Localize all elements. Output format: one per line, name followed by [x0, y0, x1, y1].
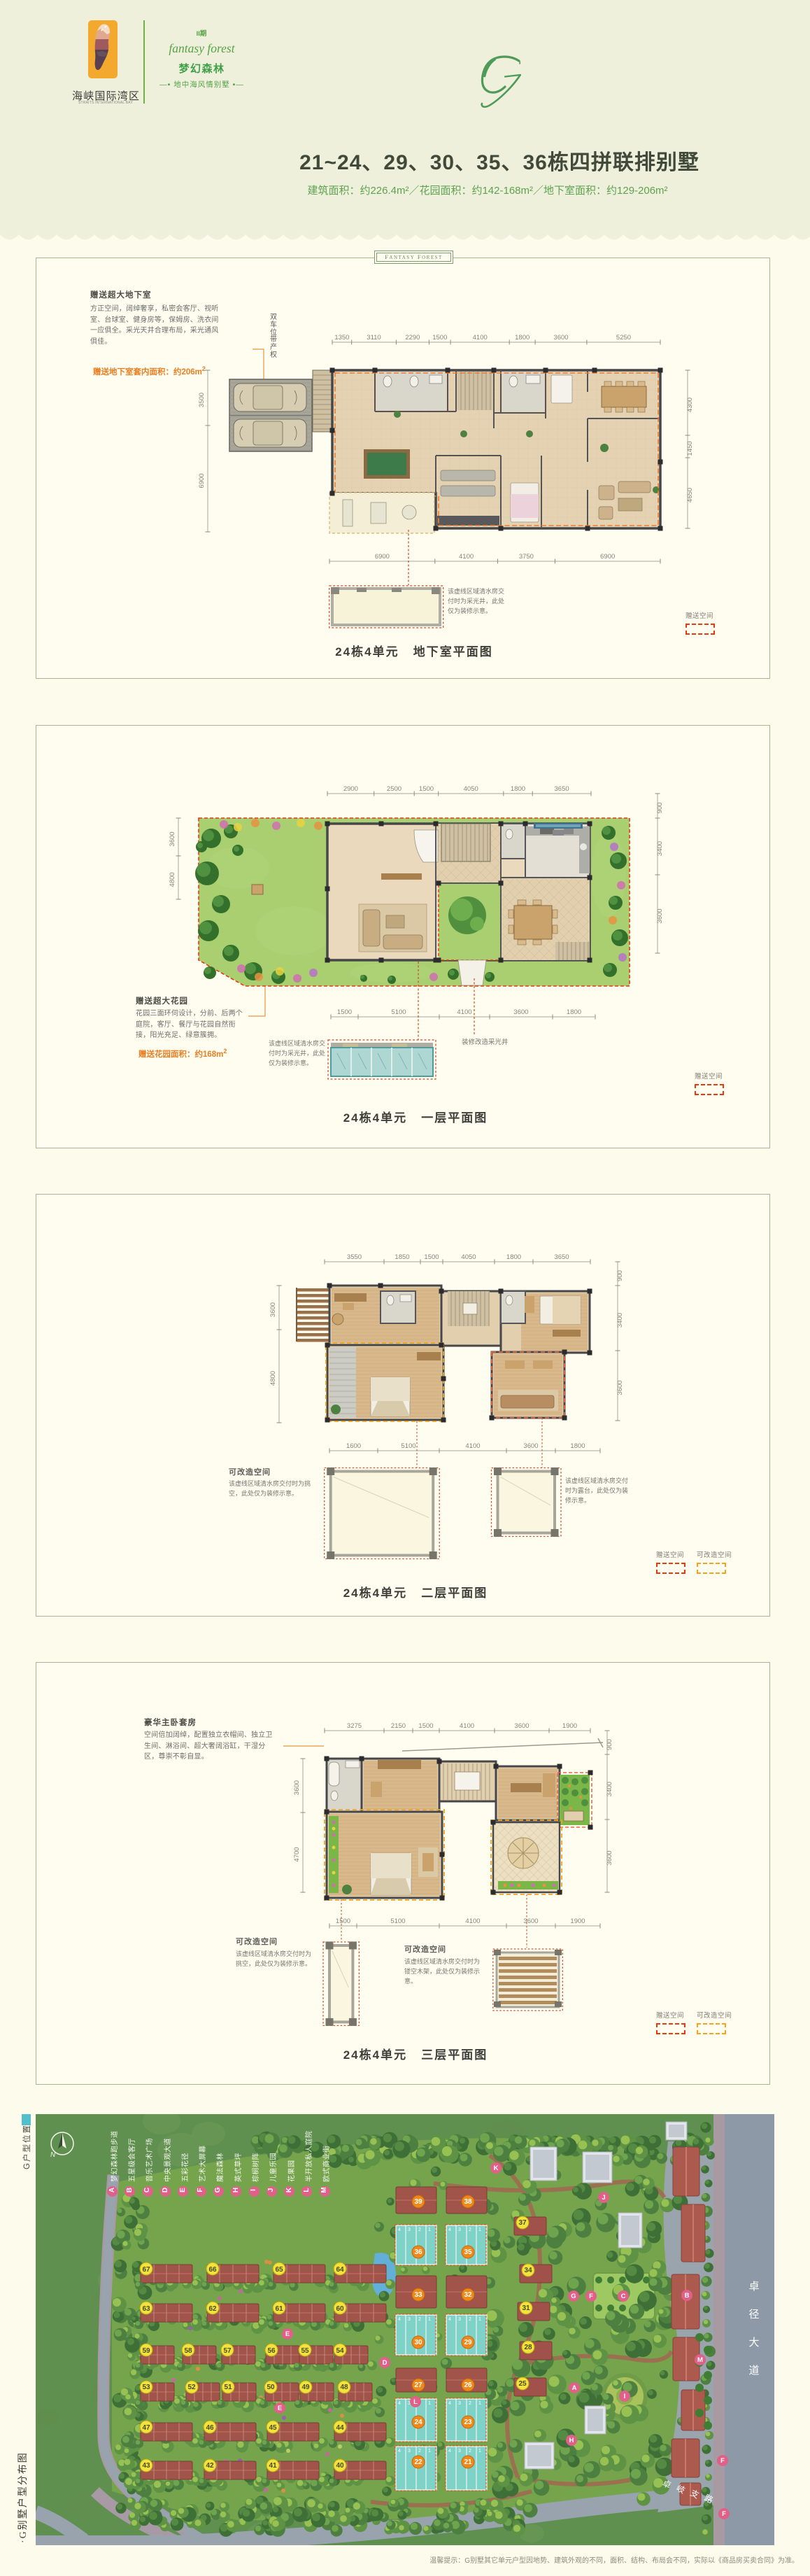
svg-text:3600: 3600: [523, 1917, 538, 1925]
svg-text:25: 25: [518, 2380, 527, 2388]
svg-text:2290: 2290: [405, 334, 420, 342]
svg-text:2: 2: [469, 2317, 471, 2322]
svg-text:1850: 1850: [395, 1253, 409, 1261]
svg-text:47: 47: [142, 2424, 150, 2432]
svg-text:4: 4: [448, 2227, 451, 2232]
svg-text:4100: 4100: [465, 1917, 480, 1925]
svg-text:3650: 3650: [554, 1253, 569, 1261]
svg-text:E: E: [285, 2330, 290, 2338]
svg-text:2500: 2500: [387, 785, 402, 793]
svg-text:3: 3: [458, 2449, 461, 2454]
svg-text:1500: 1500: [418, 1722, 433, 1730]
svg-text:3750: 3750: [519, 553, 534, 561]
svg-text:1800: 1800: [511, 785, 525, 793]
svg-text:51: 51: [224, 2384, 232, 2391]
svg-text:4050: 4050: [461, 1253, 476, 1261]
svg-text:M: M: [697, 2356, 703, 2364]
svg-text:4100: 4100: [457, 1008, 471, 1016]
svg-text:43: 43: [142, 2462, 150, 2470]
svg-text:1: 1: [428, 2317, 431, 2322]
svg-text:4650: 4650: [686, 488, 694, 502]
svg-text:3600: 3600: [293, 1780, 301, 1795]
svg-text:3500: 3500: [198, 393, 206, 407]
svg-text:27: 27: [414, 2381, 422, 2389]
svg-text:3600: 3600: [523, 1442, 538, 1450]
svg-text:900: 900: [616, 1270, 624, 1281]
svg-text:1500: 1500: [432, 334, 447, 342]
svg-text:F: F: [720, 2457, 725, 2465]
svg-text:4050: 4050: [464, 785, 478, 793]
svg-text:2: 2: [418, 2449, 421, 2454]
svg-text:42: 42: [206, 2462, 214, 2470]
svg-text:900: 900: [606, 1739, 613, 1750]
svg-text:2: 2: [418, 2317, 421, 2322]
svg-text:4100: 4100: [465, 1442, 480, 1450]
svg-text:F: F: [589, 2293, 593, 2300]
svg-text:H: H: [569, 2437, 574, 2444]
svg-text:1: 1: [428, 2227, 431, 2232]
svg-text:35: 35: [464, 2248, 472, 2256]
svg-text:B: B: [685, 2292, 690, 2300]
svg-text:1600: 1600: [346, 1442, 361, 1450]
svg-text:3600: 3600: [513, 1008, 528, 1016]
svg-text:1: 1: [428, 2449, 431, 2454]
svg-text:54: 54: [336, 2347, 344, 2355]
svg-text:23: 23: [464, 2419, 472, 2426]
svg-text:1: 1: [428, 2401, 431, 2406]
svg-text:52: 52: [187, 2384, 196, 2391]
svg-text:1500: 1500: [424, 1253, 439, 1261]
svg-text:2: 2: [469, 2449, 471, 2454]
svg-text:2900: 2900: [343, 785, 358, 793]
svg-text:3650: 3650: [555, 785, 569, 793]
svg-text:A: A: [572, 2384, 577, 2392]
svg-text:1: 1: [478, 2449, 481, 2454]
svg-text:3600: 3600: [269, 1302, 277, 1317]
svg-text:66: 66: [208, 2266, 217, 2274]
svg-text:1800: 1800: [506, 1253, 521, 1261]
svg-text:5100: 5100: [390, 1917, 405, 1925]
svg-text:3: 3: [408, 2449, 411, 2454]
svg-text:28: 28: [524, 2344, 532, 2351]
svg-text:G: G: [571, 2293, 576, 2300]
svg-text:J: J: [602, 2194, 605, 2202]
svg-text:3: 3: [408, 2317, 411, 2322]
svg-text:D: D: [383, 2359, 388, 2367]
svg-text:36: 36: [414, 2248, 422, 2256]
svg-text:4800: 4800: [169, 872, 176, 887]
svg-text:900: 900: [656, 803, 664, 814]
svg-text:3550: 3550: [347, 1253, 362, 1261]
svg-text:1: 1: [478, 2317, 481, 2322]
svg-text:4800: 4800: [269, 1371, 277, 1386]
svg-text:F: F: [722, 2510, 726, 2518]
svg-text:1900: 1900: [562, 1722, 577, 1730]
svg-text:1450: 1450: [686, 441, 694, 456]
svg-text:22: 22: [414, 2458, 422, 2466]
svg-text:4: 4: [398, 2449, 401, 2454]
svg-text:1500: 1500: [337, 1008, 352, 1016]
svg-text:44: 44: [336, 2424, 344, 2432]
svg-text:60: 60: [336, 2305, 344, 2313]
svg-text:4100: 4100: [459, 553, 474, 561]
svg-text:5100: 5100: [391, 1008, 406, 1016]
svg-text:46: 46: [206, 2424, 214, 2432]
svg-text:41: 41: [269, 2462, 277, 2470]
svg-text:1500: 1500: [419, 785, 434, 793]
svg-text:3400: 3400: [656, 841, 664, 856]
svg-text:30: 30: [414, 2339, 422, 2346]
svg-text:1: 1: [478, 2401, 481, 2406]
svg-text:21: 21: [464, 2458, 472, 2466]
svg-text:40: 40: [336, 2462, 344, 2470]
svg-text:5100: 5100: [401, 1442, 415, 1450]
svg-text:C: C: [621, 2293, 626, 2300]
svg-text:2: 2: [469, 2401, 471, 2406]
svg-text:道: 道: [748, 2365, 759, 2377]
svg-text:3600: 3600: [616, 1380, 624, 1395]
svg-text:67: 67: [142, 2266, 150, 2274]
svg-text:2: 2: [469, 2227, 471, 2232]
svg-text:3600: 3600: [169, 831, 176, 846]
svg-text:3600: 3600: [553, 334, 568, 342]
svg-text:3275: 3275: [347, 1722, 362, 1730]
svg-text:62: 62: [208, 2305, 217, 2313]
svg-text:33: 33: [414, 2291, 422, 2299]
svg-text:1800: 1800: [515, 334, 530, 342]
svg-text:大: 大: [748, 2337, 759, 2349]
svg-text:6900: 6900: [198, 473, 206, 488]
svg-text:径: 径: [748, 2309, 759, 2321]
svg-text:53: 53: [142, 2384, 150, 2391]
svg-text:1800: 1800: [570, 1442, 585, 1450]
svg-text:4300: 4300: [686, 397, 694, 412]
svg-text:4700: 4700: [293, 1847, 301, 1861]
svg-text:1800: 1800: [567, 1008, 581, 1016]
svg-text:45: 45: [269, 2424, 277, 2432]
svg-text:58: 58: [184, 2347, 192, 2355]
svg-text:29: 29: [464, 2339, 472, 2346]
svg-text:49: 49: [301, 2384, 310, 2391]
svg-text:32: 32: [464, 2291, 472, 2299]
svg-text:4100: 4100: [460, 1722, 474, 1730]
svg-text:57: 57: [223, 2347, 232, 2355]
svg-text:3400: 3400: [606, 1782, 613, 1796]
svg-text:4: 4: [398, 2227, 401, 2232]
svg-text:E: E: [278, 2405, 282, 2412]
svg-text:37: 37: [518, 2219, 527, 2227]
svg-text:38: 38: [464, 2198, 472, 2206]
svg-text:65: 65: [275, 2266, 283, 2274]
svg-text:26: 26: [464, 2381, 472, 2389]
svg-text:4: 4: [448, 2317, 451, 2322]
svg-text:4: 4: [398, 2401, 401, 2406]
svg-text:3400: 3400: [616, 1313, 624, 1328]
svg-text:55: 55: [301, 2347, 309, 2355]
svg-text:48: 48: [340, 2384, 348, 2391]
svg-text:63: 63: [142, 2305, 150, 2313]
svg-text:6900: 6900: [600, 553, 615, 561]
svg-text:3: 3: [458, 2227, 461, 2232]
svg-text:64: 64: [336, 2266, 344, 2274]
svg-text:I: I: [624, 2393, 626, 2400]
svg-text:2: 2: [418, 2227, 421, 2232]
svg-text:24: 24: [414, 2419, 422, 2426]
svg-text:N: N: [50, 2151, 56, 2159]
svg-text:5250: 5250: [616, 334, 631, 342]
svg-text:39: 39: [414, 2198, 422, 2206]
svg-text:1350: 1350: [334, 334, 349, 342]
svg-text:3: 3: [458, 2317, 461, 2322]
svg-text:59: 59: [142, 2347, 150, 2355]
svg-text:1: 1: [478, 2227, 481, 2232]
svg-text:50: 50: [267, 2384, 275, 2391]
svg-text:3600: 3600: [606, 1850, 613, 1865]
svg-text:3600: 3600: [514, 1722, 529, 1730]
svg-text:4: 4: [448, 2449, 451, 2454]
svg-text:K: K: [494, 2165, 499, 2172]
svg-text:1900: 1900: [570, 1917, 585, 1925]
svg-text:1500: 1500: [336, 1917, 350, 1925]
svg-text:6900: 6900: [375, 553, 390, 561]
svg-text:3600: 3600: [656, 908, 664, 923]
svg-text:4100: 4100: [473, 334, 488, 342]
svg-text:L: L: [413, 2398, 418, 2406]
svg-text:4: 4: [398, 2317, 401, 2322]
svg-text:61: 61: [275, 2305, 283, 2313]
svg-text:31: 31: [522, 2304, 530, 2312]
svg-text:4: 4: [448, 2401, 451, 2406]
svg-text:56: 56: [267, 2347, 276, 2355]
svg-text:3: 3: [408, 2227, 411, 2232]
svg-text:2150: 2150: [391, 1722, 406, 1730]
svg-text:34: 34: [524, 2267, 532, 2274]
svg-text:卓: 卓: [748, 2281, 759, 2293]
svg-text:3: 3: [458, 2401, 461, 2406]
svg-text:3110: 3110: [367, 334, 381, 342]
